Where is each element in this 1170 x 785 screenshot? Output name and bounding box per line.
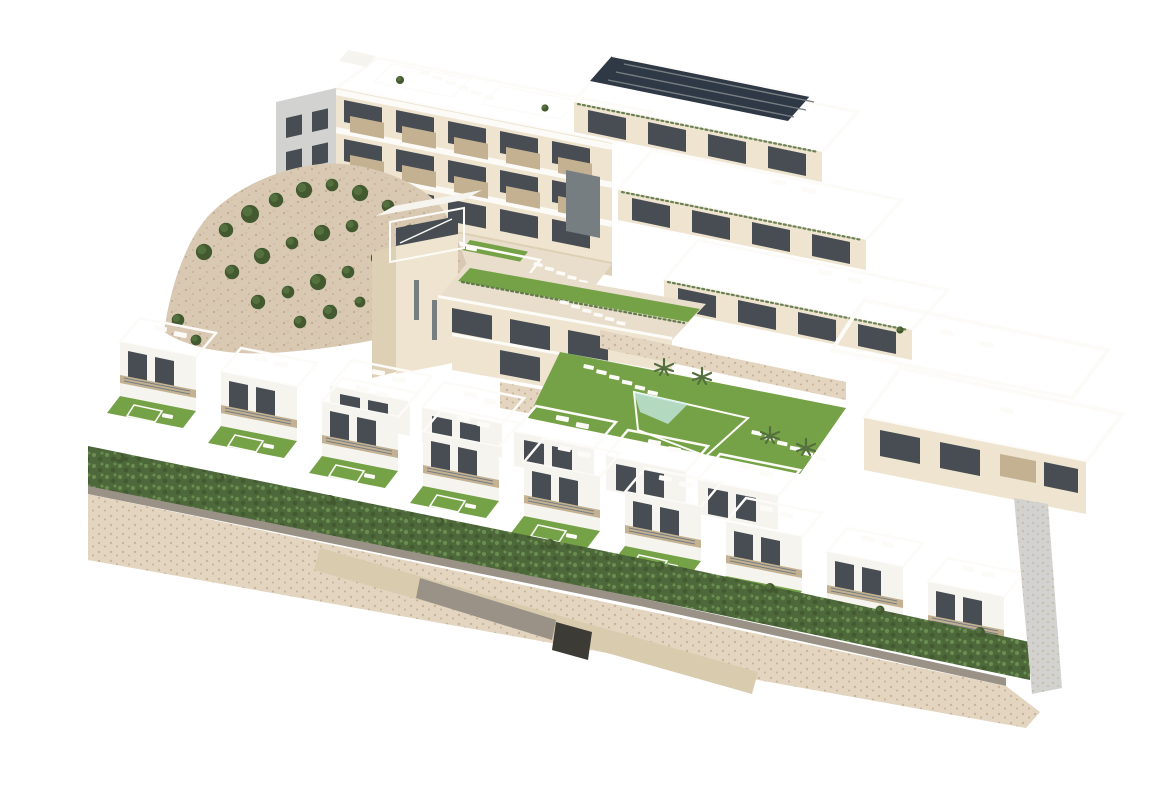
screenshot-root <box>0 0 1170 785</box>
service-recess <box>566 170 600 238</box>
townhouse <box>208 348 317 458</box>
render-canvas <box>0 0 1170 785</box>
